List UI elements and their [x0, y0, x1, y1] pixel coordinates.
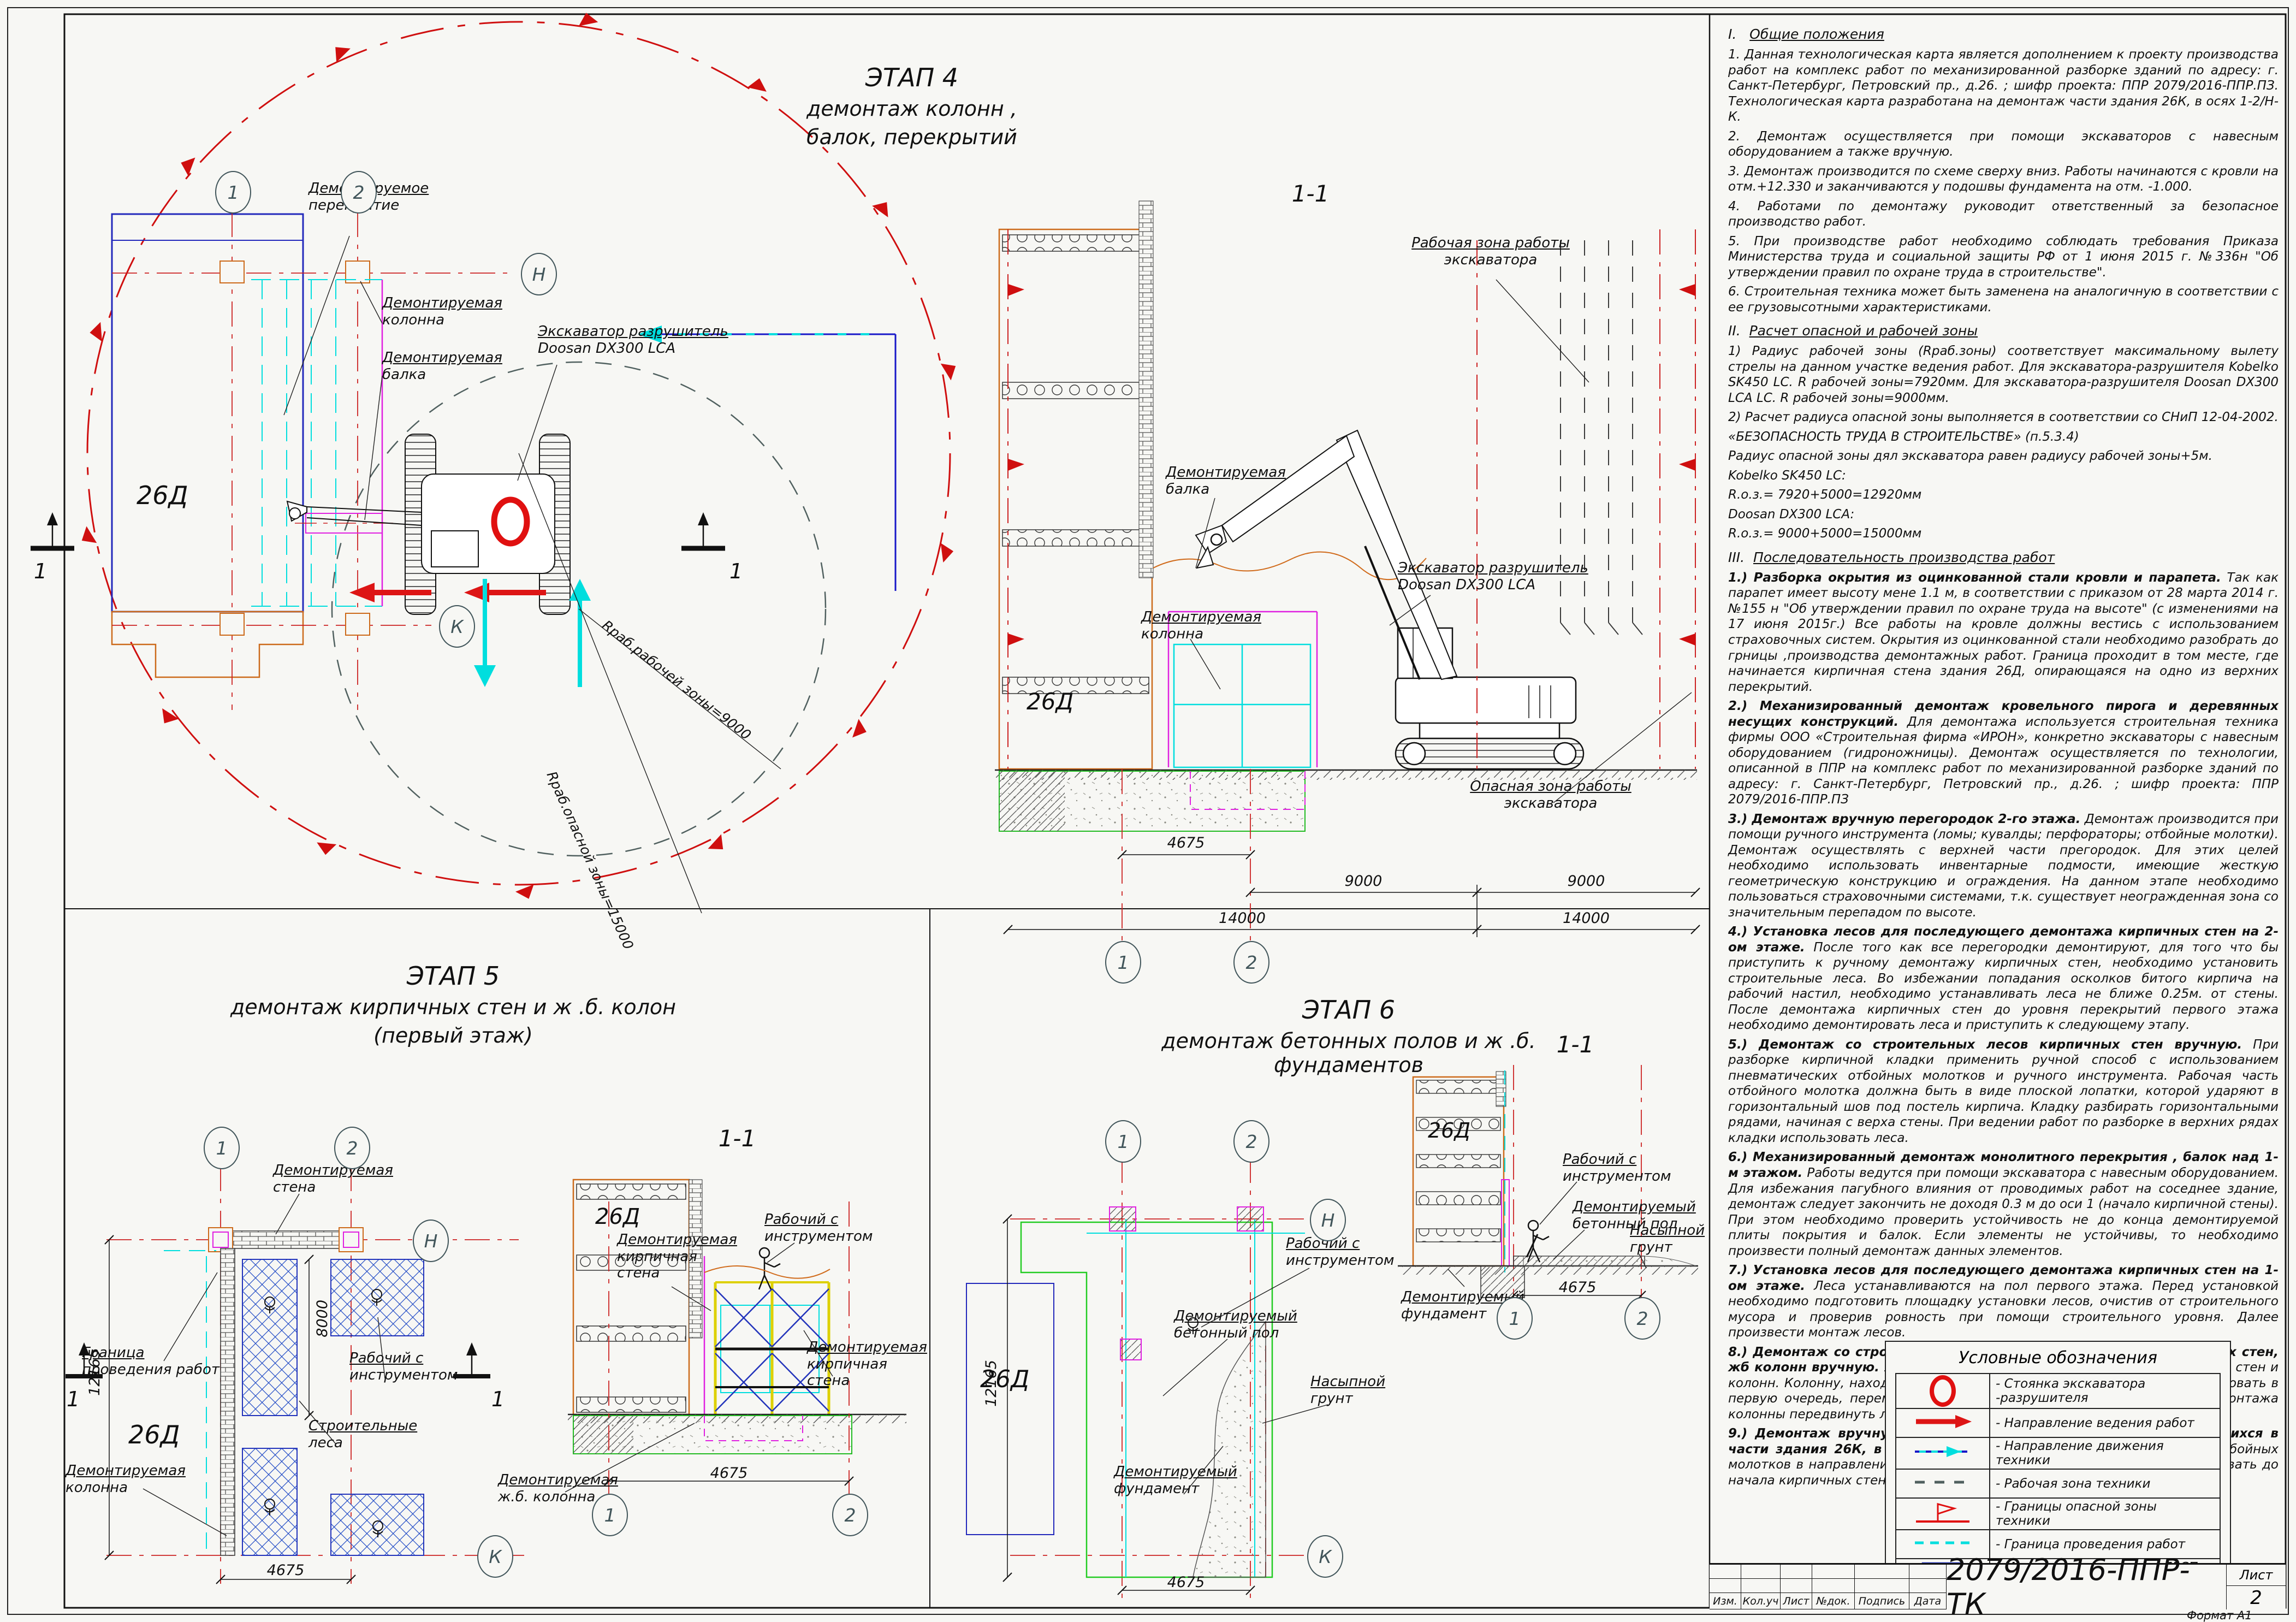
section-title: 1-1: [1537, 1031, 1613, 1058]
document-code: 2079/2016-ППР-ТК: [1947, 1565, 2227, 1609]
section3-heading: III. Последовательность производства раб…: [1728, 549, 2279, 566]
note-item: 5. При производстве работ необходимо соб…: [1728, 234, 2279, 281]
dim-4675: 4675: [267, 1562, 305, 1579]
stage5-title: ЭТАП 5демонтаж кирпичных стен и ж .б. ко…: [229, 961, 677, 1047]
note-item: 2) Расчет радиуса опасной зоны выполняет…: [1728, 410, 2279, 425]
sheet-label: Лист: [2227, 1565, 2286, 1586]
legend-label: - Направление движения техники: [1990, 1437, 2220, 1469]
label-scaffold: Строительныелеса: [308, 1418, 417, 1451]
section1-heading: I. Общие положения: [1728, 26, 2279, 43]
label-excavator: Экскаватор разрушительDoosan DX300 LCA: [538, 323, 728, 357]
axis-bubble-1: 1: [215, 171, 251, 214]
label-fill-soil: Насыпнойгрунт: [1630, 1222, 1705, 1256]
label-brick-wall: Демонтируемаякирпичнаястена: [807, 1339, 927, 1389]
section11-drawing: [995, 201, 1700, 940]
axis-bubble-n: Н: [413, 1220, 449, 1262]
label-wall: Демонтируемаястена: [273, 1162, 393, 1195]
axis-bubble-k: К: [439, 605, 475, 648]
section-mark-label: 1: [491, 1387, 505, 1411]
section-mark-label: 1: [34, 559, 47, 583]
dim-4675: 4675: [710, 1465, 748, 1482]
note-item: 6.) Механизированный демонтаж монолитног…: [1728, 1150, 2279, 1259]
axis-bubble-1: 1: [1105, 941, 1141, 984]
axis-bubble-2: 2: [334, 1127, 370, 1169]
section-title: 1-1: [1272, 180, 1349, 207]
notes-column: I. Общие положения 1. Данная технологиче…: [1728, 19, 2279, 1492]
label-column: Демонтируемаяколонна: [66, 1463, 186, 1496]
tb-col-koluch: Кол.уч: [1741, 1593, 1781, 1609]
fill-soil-section: [1523, 1256, 1696, 1266]
note-item: R.о.з.= 7920+5000=12920мм: [1728, 487, 2279, 503]
stage6-drawing: [966, 1065, 1698, 1600]
legend-title: Условные обозначения: [1886, 1342, 2230, 1373]
label-worker: Рабочий синструментом: [764, 1211, 873, 1245]
note-item: 4. Работами по демонтажу руководит ответ…: [1728, 199, 2279, 230]
note-item: 1. Данная технологическая карта является…: [1728, 47, 2279, 125]
section-title: 1-1: [699, 1125, 775, 1152]
note-item: R.о.з.= 9000+5000=15000мм: [1728, 526, 2279, 542]
format-note: Формат А1: [2187, 1609, 2252, 1622]
note-item: 7.) Установка лесов для последующего дем…: [1728, 1263, 2279, 1341]
note-item: 6. Строительная техника может быть замен…: [1728, 284, 2279, 315]
floor-slabs: [1002, 235, 1149, 694]
building-label: 26Д: [128, 1420, 180, 1449]
excavator-station-icon: [1930, 1375, 1956, 1407]
axis-bubble-k: К: [477, 1535, 513, 1578]
stage4-title: ЭТАП 4демонтаж колонн ,балок, перекрытий: [737, 63, 1087, 149]
building-label: 26Д: [1428, 1118, 1470, 1142]
label-worker: Рабочий синструментом: [1286, 1235, 1395, 1269]
title-block-grid: Изм. Кол.уч Лист №док. Подпись Дата: [1710, 1565, 1947, 1609]
tb-col-list: Лист: [1781, 1593, 1812, 1609]
label-column: Демонтируемаяколонна: [1141, 609, 1261, 642]
building-label: 26Д: [1027, 688, 1073, 715]
building-label: 26Д: [595, 1204, 640, 1229]
stage4-columns: [220, 261, 370, 635]
dim-14000: 14000: [1563, 910, 1610, 927]
axis-bubble-1: 1: [1105, 1120, 1141, 1163]
note-item: 2. Демонтаж осуществляется при помощи эк…: [1728, 129, 2279, 160]
axis-bubble-2: 2: [1233, 941, 1269, 984]
section2-heading: II. Расчет опасной и рабочей зоны: [1728, 322, 2279, 339]
label-column: Демонтируемаяколонна: [382, 295, 502, 328]
work-border-icon: [1913, 1537, 1973, 1548]
axis-bubble-2: 2: [1624, 1297, 1660, 1340]
label-concrete-floor: Демонтируемыйбетонный пол: [1174, 1308, 1297, 1341]
note-item: 1) Радиус рабочей зоны (Rраб.зоны) соотв…: [1728, 344, 2279, 406]
note-item: 2.) Механизированный демонтаж кровельног…: [1728, 698, 2279, 808]
dim-8000: 8000: [314, 1300, 331, 1337]
dim-4675: 4675: [1559, 1279, 1597, 1296]
tb-col-podpis: Подпись: [1855, 1593, 1909, 1609]
note-item: 5.) Демонтаж со строительных лесов кирпи…: [1728, 1037, 2279, 1146]
label-worker: Рабочий синструментом: [349, 1350, 458, 1383]
label-fill-soil: Насыпнойгрунт: [1310, 1374, 1385, 1407]
legend-label: - Направление ведения работ: [1990, 1408, 2220, 1437]
axis-bubble-2: 2: [1233, 1120, 1269, 1163]
note-item: Doosan DX300 LCA:: [1728, 507, 2279, 523]
dim-4675: 4675: [1167, 834, 1205, 851]
building-26d-plan: [112, 214, 303, 677]
note-item: «БЕЗОПАСНОСТЬ ТРУДА В СТРОИТЕЛЬСТВЕ» (п.…: [1728, 429, 2279, 445]
work-direction-arrows: [349, 583, 546, 602]
dim-12165: 12165: [86, 1349, 103, 1396]
axis-bubble-2: 2: [832, 1494, 868, 1536]
axis-bubble-n: Н: [521, 253, 557, 295]
axis-bubble-1: 1: [592, 1494, 628, 1536]
label-beam: Демонтируемаябалка: [382, 350, 502, 383]
stage4-section-marks: [31, 512, 725, 548]
label-foundation: Демонтируемыйфундамент: [1114, 1464, 1237, 1497]
dim-12165: 12165: [983, 1360, 1000, 1407]
axis-bubble-2: 2: [341, 171, 377, 214]
note-item: 3. Демонтаж производится по схеме сверху…: [1728, 164, 2279, 195]
machine-move-icon: [1913, 1443, 1973, 1460]
dim-9000: 9000: [1345, 873, 1383, 890]
note-item: 4.) Установка лесов для последующего дем…: [1728, 924, 2279, 1033]
danger-border-icon: [1913, 1500, 1973, 1525]
label-beam: Демонтируемаябалка: [1166, 464, 1286, 498]
dim-9000: 9000: [1568, 873, 1605, 890]
rubble-line: [1153, 552, 1426, 580]
axis-bubble-k: К: [1307, 1535, 1343, 1578]
title-block: Изм. Кол.уч Лист №док. Подпись Дата 2079…: [1710, 1563, 2286, 1609]
label-work-zone: Рабочая зона работыэкскаватора: [1409, 235, 1573, 268]
label-excavator: Экскаватор разрушительDoosan DX300 LCA: [1398, 560, 1588, 593]
tb-col-data: Дата: [1909, 1593, 1947, 1609]
note-item: Радиус опасной зоны дял экскаватора раве…: [1728, 448, 2279, 464]
label-worker: Рабочий синструментом: [1563, 1151, 1671, 1185]
tb-col-izm: Изм.: [1710, 1593, 1741, 1609]
work-zone-icon: [1913, 1477, 1973, 1488]
dim-14000: 14000: [1219, 910, 1266, 927]
section-mark-label: 1: [67, 1387, 80, 1411]
label-danger-zone: Опасная зона работыэкскаватора: [1469, 778, 1633, 812]
axis-bubble-1: 1: [1497, 1297, 1533, 1340]
drawing-sheet: ЭТАП 4демонтаж колонн ,балок, перекрытий…: [0, 0, 2296, 1622]
note-item: 1.) Разборка окрытия из оцинкованной ста…: [1728, 570, 2279, 695]
axis-bubble-1: 1: [204, 1127, 240, 1169]
dim-4675: 4675: [1167, 1574, 1205, 1591]
tb-col-ndok: №док.: [1812, 1593, 1855, 1609]
axis-bubble-n: Н: [1310, 1199, 1346, 1241]
label-brick-wall: Демонтируемаякирпичнаястена: [617, 1232, 737, 1282]
note-item: 3.) Демонтаж вручную перегородок 2-го эт…: [1728, 812, 2279, 921]
window-frames: [1174, 644, 1310, 767]
legend-label: - Стоянка экскаватора -разрушителя: [1990, 1374, 2220, 1408]
building-label: 26Д: [137, 481, 188, 510]
note-item: Kobelko SK450 LC:: [1728, 468, 2279, 484]
sheet-number: 2: [2227, 1586, 2286, 1609]
section-mark-label: 1: [729, 559, 743, 583]
legend-label: - Рабочая зона техники: [1990, 1469, 2220, 1498]
legend-label: - Границы опасной зоны техники: [1990, 1498, 2220, 1530]
stage6-title: ЭТАП 6демонтаж бетонных полов и ж .б. фу…: [1103, 995, 1594, 1077]
work-direction-icon: [1913, 1413, 1973, 1430]
stage4-slab-edges: [251, 280, 382, 606]
